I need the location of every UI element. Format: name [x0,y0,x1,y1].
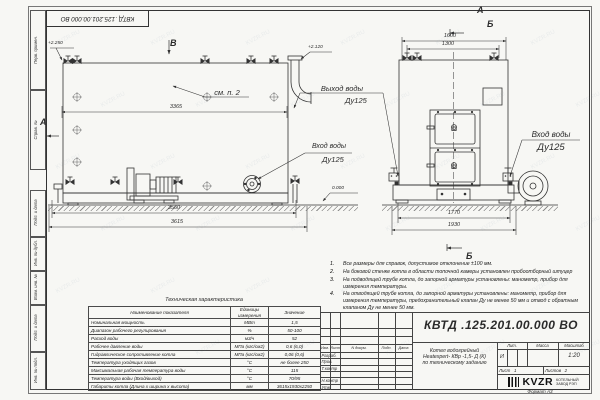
tech-name: Максимальная рабочая температура воды [89,367,231,375]
tb-row-prov: Пров. [322,359,352,364]
inlet-front-label: Вход воды [520,130,582,139]
dim-1930: 1930 [434,222,474,228]
frame-label-inv-dubl: Инв. № дубл. [33,237,38,269]
dim-3615: 3615 [155,219,199,225]
tb-sheets: Листов 2 [545,368,589,373]
dim-3560: 3560 [152,205,196,211]
tech-unit: МВт [231,319,269,327]
tb-col-ndokum: N докум. [341,346,377,350]
level-2120: +2.120 [308,45,336,50]
outlet-label: Выход воды [299,84,385,93]
tech-name: Температура воды (Вход/выход) [89,375,231,383]
tech-unit: °С [231,367,269,375]
inlet-side-dn: Ду125 [311,155,355,164]
kvzr-logo-icon [508,377,519,387]
view-mark-b-bottom: Б [466,251,472,261]
note-2: 2. На боковой стенке котла в области топ… [330,269,588,276]
tb-lit-header: Лит. [497,343,527,348]
note-number: 3. [330,277,343,283]
sheet-label: Лист [499,368,510,373]
tech-name: Температура уходящих газов [89,359,231,367]
tech-table: Наименование показателя Единицы измерени… [88,306,321,391]
tech-unit: м3/ч [231,335,269,343]
note-text: Все размеры для справок, допустимое откл… [343,261,493,268]
sheets-value: 2 [565,368,567,373]
tech-value: 0,6 (6,0) [269,343,321,351]
outlet-dn: Ду125 [330,96,382,105]
callout-see-note: см. п. 2 [204,88,250,97]
note-number: 4. [330,291,343,297]
frame-label-inv-podl: Инв. № подл. [33,352,38,388]
sheet-value: 1 [514,368,516,373]
tb-scale-header: Масштаб [558,343,590,348]
frame-label-podp-data: Подп. и дата [33,190,38,235]
tb-row-utv: Утв. [322,385,352,390]
tb-scale-value: 1:20 [558,353,590,359]
tech-name: Номинальная мощность [89,319,231,327]
note-text: На боковой стенке котла в области топочн… [343,269,572,276]
frame-label-vzam-inv: Взам. инв. № [33,271,38,303]
dim-1770: 1770 [434,210,474,216]
table-row: Температура уходящих газов°Сне более 250 [89,359,321,367]
table-row: Расход водым3/ч52 [89,335,321,343]
note-1: 1. Все размеры для справок, допустимое о… [330,261,588,268]
tech-unit: % [231,327,269,335]
tb-row-tkontr: Т.контр [322,366,352,371]
tb-row-nkontr: Н.контр [322,378,352,383]
tech-header-value: Значение [269,307,321,319]
frame-label-sprav-n: Справ. № [33,92,38,168]
table-row: Габариты котла (Длина х ширина х высота)… [89,383,321,391]
table-row: Диапазон рабочего регулирования%50-100 [89,327,321,335]
view-mark-a-top: А [477,5,484,15]
inlet-front-dn: Ду125 [524,142,578,153]
tech-unit: мм [231,383,269,391]
tech-table-title: Техническая характеристика [88,297,320,303]
tb-lit-value: И [497,354,507,360]
frame-label-perv-primen: Перв. примен. [33,12,38,88]
view-mark-a-side: А [40,117,47,127]
dim-3365: 3365 [154,104,198,110]
tech-value: 50-100 [269,327,321,335]
view-mark-b-top: Б [487,19,493,29]
ground-hatch-left [48,206,358,211]
tech-value: 115 [269,367,321,375]
tech-unit: МПа (кгс/см2) [231,351,269,359]
front-view [382,29,580,251]
tech-unit: °С [231,359,269,367]
note-number: 1. [330,261,343,267]
format-label: Формат А3 [500,389,580,394]
inlet-side-label: Вход воды [303,143,355,150]
tb-doc-number: КВТД .125.201.00.000 ВО [412,318,590,332]
table-row: Рабочее давление водыМПа (кгс/см2)0,6 (6… [89,343,321,351]
table-row: Температура воды (Вход/выход)°С70/95 [89,375,321,383]
drawing-sheet: Перв. примен. Справ. № Подп. и дата Инв.… [0,0,600,400]
tb-col-list: Лист [331,346,340,350]
dim-1300: 1300 [426,41,470,47]
tech-unit: МПа (кгс/см2) [231,343,269,351]
table-row: Номинальная мощностьМВт1,5 [89,319,321,327]
tech-value: 1,5 [269,319,321,327]
tech-name: Гидравлическое сопротивление котла [89,351,231,359]
tb-mass-header: Масса [527,343,558,348]
tech-name: Рабочее давление воды [89,343,231,351]
level-2250: +2.250 [48,41,76,46]
tech-value: 70/95 [269,375,321,383]
note-3: 3. На подводящей трубе котла, до запорно… [330,277,588,291]
tech-value: 0,06 (0,6) [269,351,321,359]
kvzr-logo-caption: КОТЕЛЬНЫЙ ЗАВОД РЭП [556,378,579,386]
tech-unit: °С [231,375,269,383]
tech-name: Диапазон рабочего регулирования [89,327,231,335]
table-row: Максимальная рабочая температура воды°С1… [89,367,321,375]
kvzr-logo-text: KVZR [522,376,553,388]
tech-header-name: Наименование показателя [89,307,231,319]
sheets-label: Листов [545,368,561,373]
tb-row-razrab: Разраб. [322,353,352,358]
tb-sheet: Лист 1 [499,368,541,373]
tech-name: Габариты котла (Длина х ширина х высота) [89,383,231,391]
frame-label-podp-data2: Подп. и дата [33,305,38,350]
note-number: 2. [330,269,343,275]
tech-value: не более 250 [269,359,321,367]
note-text: На подводящей трубе котла, до запорной а… [343,277,588,291]
level-0000: 0.000 [332,186,362,191]
tb-product-name: Котел водогрейный Heatexpert- КВр -1,5- … [412,348,497,366]
view-mark-v: В [170,38,177,48]
notes: 1. Все размеры для справок, допустимое о… [330,261,588,313]
tb-col-data: Дата [396,346,411,350]
tech-name: Расход воды [89,335,231,343]
tb-col-podp: Подп. [379,346,394,350]
logo-caption-line: ЗАВОД РЭП [556,382,579,386]
tech-value: 3615х1930х2250 [269,383,321,391]
tech-value: 52 [269,335,321,343]
tech-header-unit: Единицы измерения [231,307,269,319]
note-4: 4. На отводящей трубе котла, до запорной… [330,291,588,312]
product-name-line: по техническому заданию [412,360,497,366]
dim-1600: 1600 [428,33,472,39]
table-row: Гидравлическое сопротивление котлаМПа (к… [89,351,321,359]
tech-header-row: Наименование показателя Единицы измерени… [89,307,321,319]
side-view [47,40,398,232]
note-text: На отводящей трубе котла, до запорной ар… [343,291,588,312]
tb-col-izm: Изм. [321,346,330,350]
